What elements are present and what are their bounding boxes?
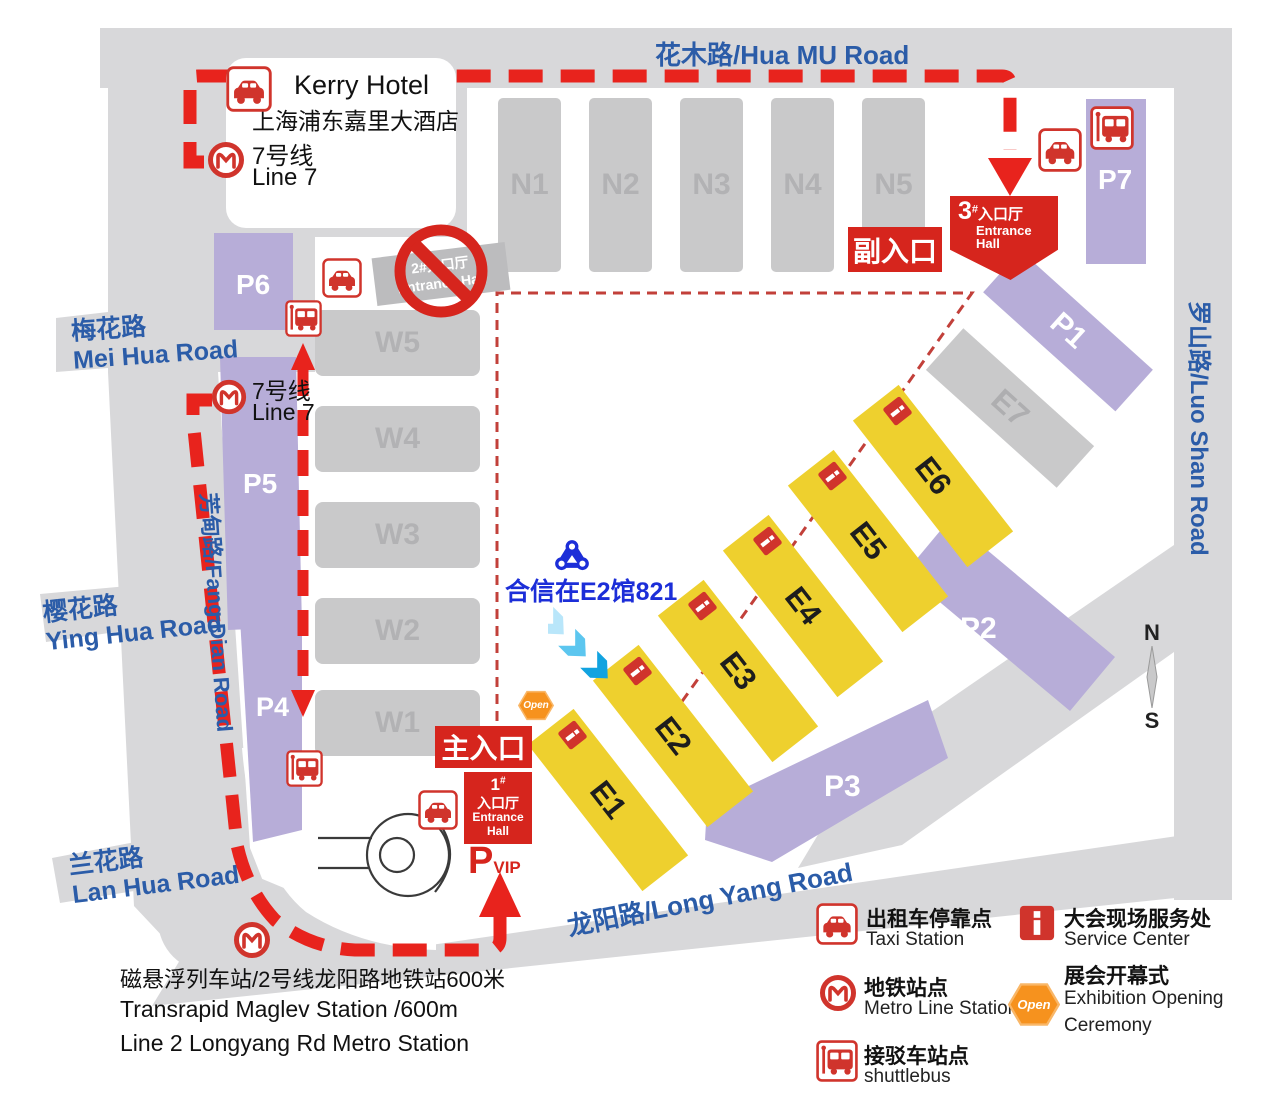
- parking-p6-label: P6: [236, 269, 270, 301]
- hall-label: E7: [984, 382, 1036, 434]
- service-center-icon: [881, 394, 915, 428]
- legend-service-en: Service Center: [1064, 929, 1190, 951]
- secondary-entrance-badge: 副入口: [848, 227, 942, 272]
- hall-label: W3: [375, 518, 420, 552]
- footer-maglev-en: Transrapid Maglev Station /600m: [120, 996, 458, 1023]
- vip-text: VIP: [493, 858, 520, 877]
- shuttlebus-icon: [816, 1040, 858, 1082]
- service-center-icon: [816, 459, 850, 493]
- hall-label: N5: [874, 168, 912, 202]
- hall-label: E1: [582, 774, 634, 826]
- road-label-luoshan: 罗山路/Luo Shan Road: [1193, 301, 1219, 541]
- road-label-huamu: 花木路/Hua MU Road: [655, 35, 909, 72]
- compass-south: S: [1145, 708, 1160, 734]
- hall-n3: N3: [680, 98, 743, 272]
- taxi-icon: [816, 903, 858, 945]
- hall-label: N4: [783, 168, 821, 202]
- entrance-hall1-hash: #: [500, 776, 506, 787]
- exhibitor-logo-icon: [553, 538, 591, 576]
- hall-label: W2: [375, 614, 420, 648]
- open-ceremony-icon: Open: [518, 690, 554, 721]
- compass: N S: [1130, 620, 1174, 734]
- hall-n4: N4: [771, 98, 834, 272]
- compass-north: N: [1144, 620, 1160, 646]
- hotel-name-en: Kerry Hotel: [294, 70, 429, 101]
- hall-w2: W2: [315, 598, 480, 664]
- metro-icon: [206, 140, 246, 180]
- hotel-name-cn: 上海浦东嘉里大酒店: [252, 102, 459, 136]
- parking-p3-label: P3: [824, 770, 861, 804]
- hall-n1: N1: [498, 98, 561, 272]
- footer-metro-en: Line 2 Longyang Rd Metro Station: [120, 1030, 469, 1057]
- legend-metro-en: Metro Line Station: [864, 998, 1018, 1020]
- west-metro-line-en: Line 7: [252, 399, 315, 426]
- hall-label: W5: [375, 326, 420, 360]
- metro-icon: [232, 920, 272, 960]
- taxi-icon: [226, 66, 272, 112]
- hall-n2: N2: [589, 98, 652, 272]
- service-center-icon: [686, 589, 720, 623]
- direction-chevrons-icon: [548, 602, 634, 692]
- hall-label: E6: [907, 450, 959, 502]
- hall-w3: W3: [315, 502, 480, 568]
- open-label: Open: [518, 690, 554, 721]
- legend-taxi-en: Taxi Station: [866, 929, 964, 951]
- taxi-icon: [322, 258, 362, 298]
- service-center-icon: [556, 718, 590, 752]
- hall-w4: W4: [315, 406, 480, 472]
- taxi-icon: [1038, 128, 1082, 172]
- vip-parking-label: PVIP: [468, 840, 521, 883]
- service-center-icon: [751, 524, 785, 558]
- hall-label: N3: [692, 168, 730, 202]
- hall-label: N2: [601, 168, 639, 202]
- road-label-meihua: 梅花路 Mei Hua Road: [70, 306, 239, 375]
- hall-label: W4: [375, 422, 420, 456]
- entrance-hall3-num: 3: [958, 197, 972, 225]
- parking-p4-label: P4: [256, 692, 289, 723]
- exhibition-map: 花木路/Hua MU Road 罗山路/Luo Shan Road 龙阳路/Lo…: [0, 0, 1280, 1101]
- legend-shuttle-en: shuttlebus: [864, 1066, 951, 1088]
- hall-label: E3: [712, 645, 764, 697]
- entrance-hall1-num: 1: [490, 775, 499, 794]
- metro-icon: [210, 378, 248, 416]
- entrance-hall-1: 1# 入口厅 Entrance Hall: [464, 772, 532, 844]
- hotel-metro-line-en: Line 7: [252, 164, 317, 192]
- entrance-hall3-cn: 入口厅: [978, 206, 1023, 223]
- open-ceremony-icon: Open: [1008, 982, 1060, 1027]
- hall-label: E2: [647, 710, 699, 762]
- entrance-hall1-cn: 入口厅: [464, 795, 532, 811]
- hall-label: N1: [510, 168, 548, 202]
- shuttlebus-icon: [1090, 106, 1134, 150]
- parking-p7-label: P7: [1098, 164, 1132, 196]
- shuttlebus-icon: [286, 750, 323, 787]
- service-center-icon: [1018, 904, 1056, 942]
- vip-p: P: [468, 840, 493, 882]
- entrance-hall1-en2: Hall: [464, 825, 532, 839]
- entrance-hall1-en1: Entrance: [464, 811, 532, 825]
- main-entrance-badge: 主入口: [435, 726, 532, 768]
- shuttlebus-icon: [285, 300, 322, 337]
- no-entry-icon: [392, 222, 490, 320]
- compass-needle-icon: [1143, 646, 1161, 708]
- hall-label: E4: [777, 580, 829, 632]
- metro-icon: [818, 973, 858, 1013]
- entrance-hall3-en1: Entrance: [958, 224, 1058, 237]
- taxi-icon: [418, 790, 458, 830]
- open-label: Open: [1008, 982, 1060, 1027]
- legend-open-en: Exhibition Opening Ceremony: [1064, 986, 1279, 1039]
- parking-p5-label: P5: [243, 468, 277, 500]
- footer-maglev-cn: 磁悬浮列车站/2号线龙阳路地铁站600米: [120, 962, 505, 994]
- hall-label: W1: [375, 706, 420, 740]
- parking-label: P1: [1043, 306, 1093, 356]
- entrance-hall3-en2: Hall: [958, 237, 1058, 250]
- hall-label: E5: [842, 515, 894, 567]
- parking-p2-label: P2: [960, 612, 997, 646]
